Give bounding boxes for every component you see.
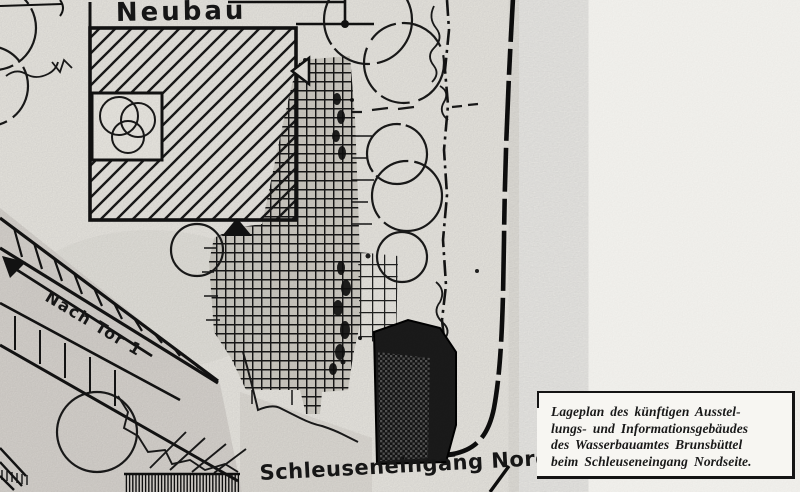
caption-line-1: Lageplan des künftigen Ausstel- <box>551 404 782 421</box>
caption-line-3: des Wasserbauamtes Brunsbüttel <box>551 437 782 454</box>
label-neubau: Neubau <box>116 0 247 28</box>
caption-line-2: lungs- und Informationsgebäudes <box>551 421 782 438</box>
scan-grain <box>0 0 535 492</box>
caption-line-4: beim Schleuseneingang Nordseite. <box>551 454 782 471</box>
caption-box: Lageplan des künftigen Ausstel- lungs- u… <box>537 391 795 479</box>
scanned-newspaper-clipping: Neubau Nach Tor 1 Schleuseneingang Nord … <box>0 0 800 492</box>
